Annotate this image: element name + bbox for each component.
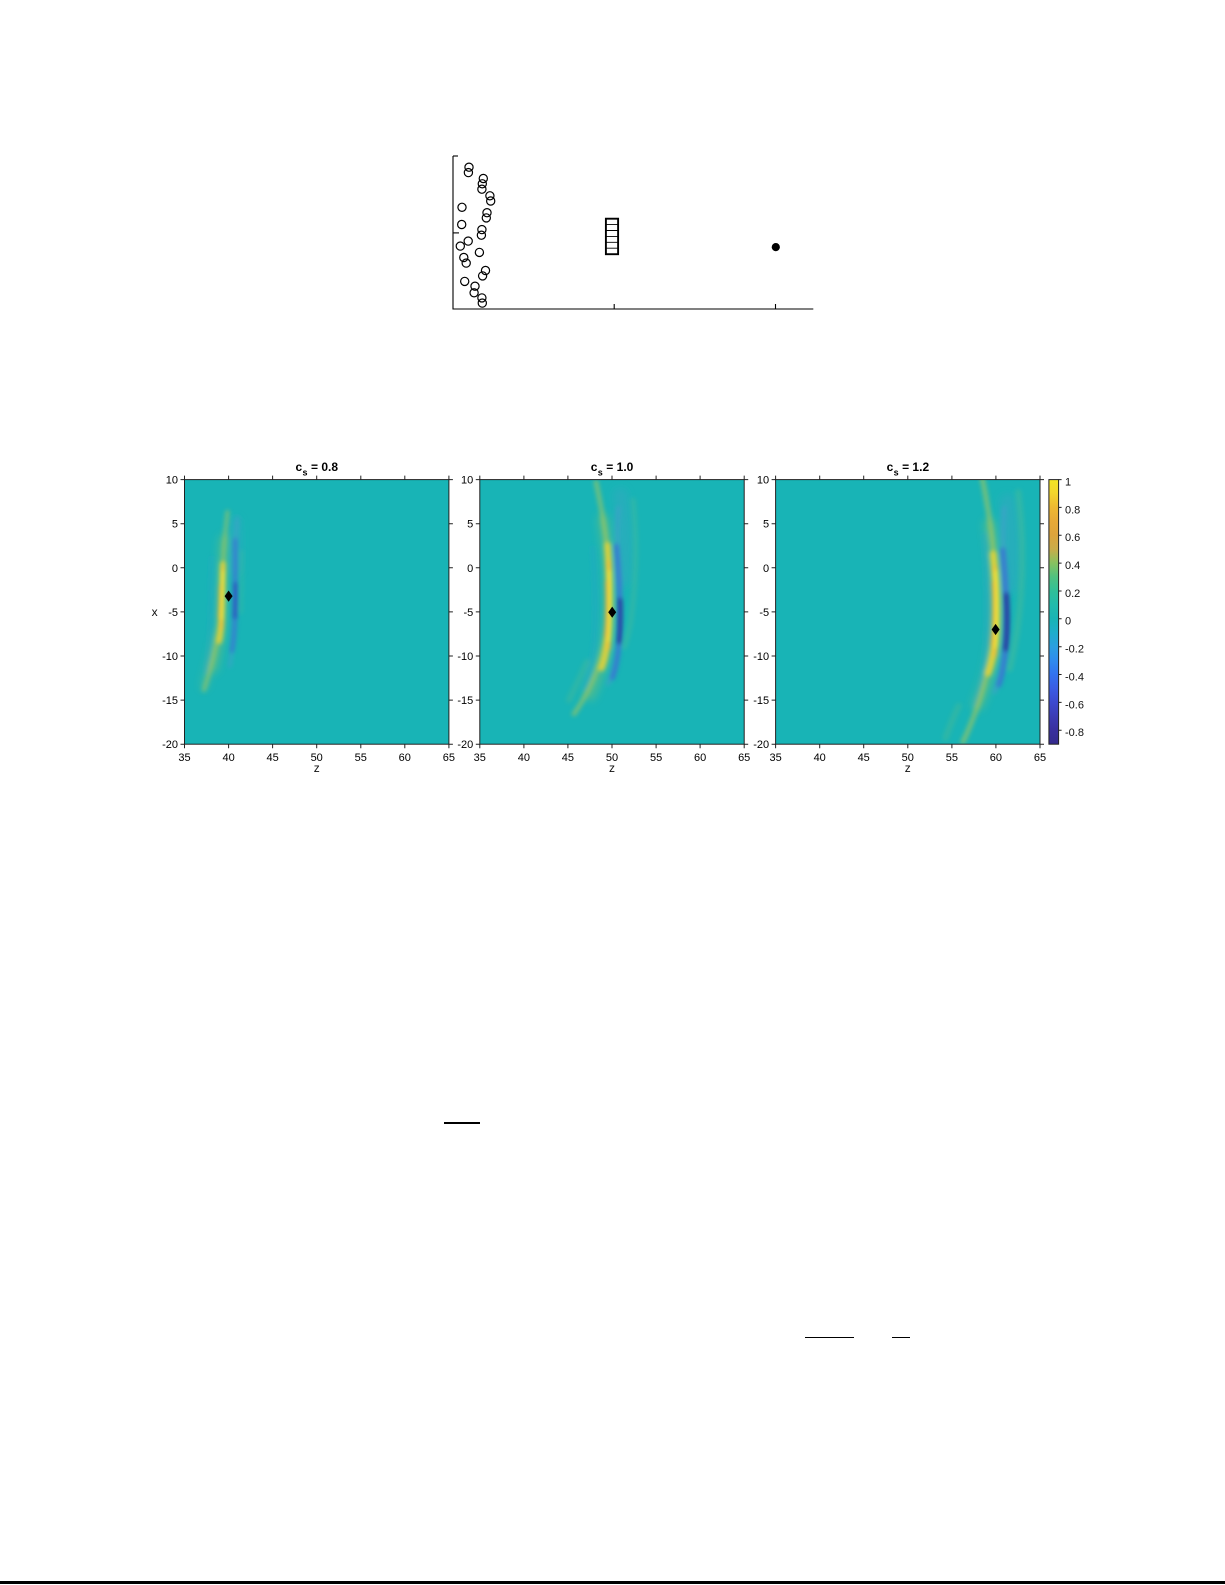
svg-text:= 1.0: = 1.0 [606,460,633,474]
svg-text:55: 55 [650,752,662,764]
svg-text:-15: -15 [753,695,769,707]
svg-text:s: s [598,468,603,478]
svg-text:0.2: 0.2 [1065,588,1080,600]
svg-text:-5: -5 [464,607,474,619]
svg-text:40: 40 [222,752,234,764]
svg-text:1: 1 [1065,477,1071,489]
svg-text:10: 10 [166,475,178,487]
svg-text:0: 0 [763,563,769,575]
svg-text:10: 10 [757,475,769,487]
svg-text:s: s [894,468,899,478]
svg-text:= 0.8: = 0.8 [311,460,338,474]
svg-text:c: c [591,460,598,474]
svg-text:z: z [314,761,320,775]
svg-text:40: 40 [518,752,530,764]
svg-text:5: 5 [172,519,178,531]
svg-text:55: 55 [355,752,367,764]
svg-text:40: 40 [814,752,826,764]
svg-text:-20: -20 [457,739,473,751]
svg-text:45: 45 [266,752,278,764]
svg-text:z: z [609,761,615,775]
svg-text:5: 5 [467,519,473,531]
svg-text:35: 35 [178,752,190,764]
svg-text:35: 35 [474,752,486,764]
svg-text:45: 45 [562,752,574,764]
svg-text:-10: -10 [753,651,769,663]
svg-text:-15: -15 [162,695,178,707]
svg-text:0: 0 [172,563,178,575]
svg-text:55: 55 [946,752,958,764]
svg-text:s: s [303,468,308,478]
svg-text:-20: -20 [162,739,178,751]
svg-text:-10: -10 [162,651,178,663]
svg-text:-0.4: -0.4 [1065,671,1084,683]
svg-text:60: 60 [399,752,411,764]
svg-text:c: c [296,460,303,474]
svg-text:-15: -15 [457,695,473,707]
svg-text:10: 10 [461,475,473,487]
svg-text:c: c [887,460,894,474]
svg-text:0.4: 0.4 [1065,560,1080,572]
svg-text:65: 65 [1034,752,1046,764]
svg-text:0: 0 [467,563,473,575]
svg-text:45: 45 [858,752,870,764]
svg-text:-10: -10 [457,651,473,663]
svg-text:60: 60 [990,752,1002,764]
svg-text:= 1.2: = 1.2 [902,460,929,474]
svg-text:5: 5 [763,519,769,531]
svg-text:x: x [152,605,158,619]
svg-text:60: 60 [694,752,706,764]
svg-text:0.6: 0.6 [1065,532,1080,544]
svg-text:35: 35 [769,752,781,764]
svg-text:-0.6: -0.6 [1065,699,1084,711]
svg-text:-20: -20 [753,739,769,751]
svg-text:0.8: 0.8 [1065,504,1080,516]
svg-text:65: 65 [443,752,455,764]
svg-text:-0.8: -0.8 [1065,727,1084,739]
svg-text:-0.2: -0.2 [1065,644,1084,656]
svg-text:-5: -5 [168,607,178,619]
svg-text:-5: -5 [759,607,769,619]
svg-text:65: 65 [738,752,750,764]
svg-text:z: z [905,761,911,775]
svg-text:0: 0 [1065,616,1071,628]
